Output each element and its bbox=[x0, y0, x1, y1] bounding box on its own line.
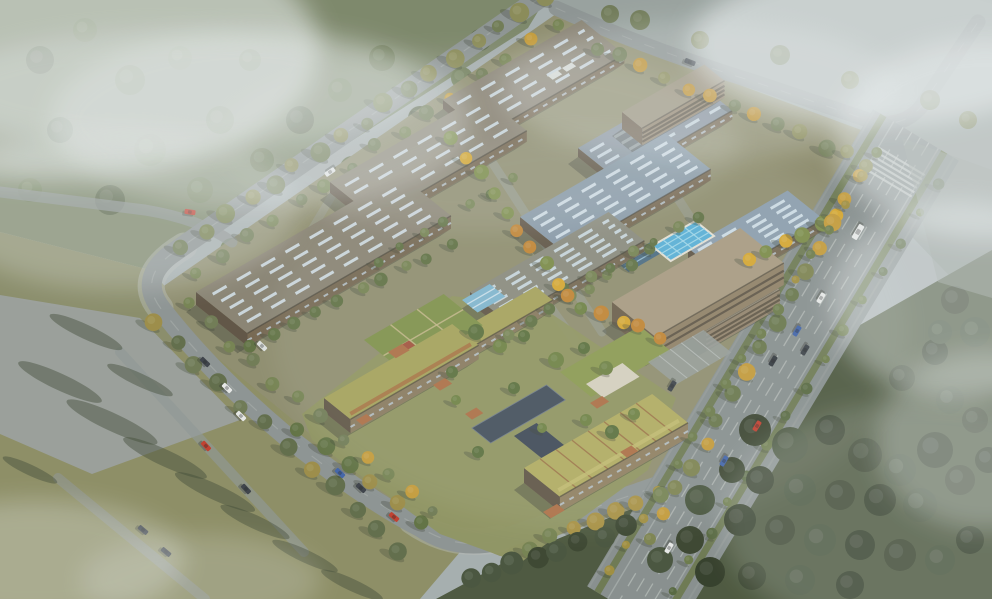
rendering-canvas bbox=[0, 0, 992, 599]
atmosphere-tint bbox=[0, 0, 992, 599]
aerial-site-rendering bbox=[0, 0, 992, 599]
scene-layers bbox=[0, 0, 992, 599]
